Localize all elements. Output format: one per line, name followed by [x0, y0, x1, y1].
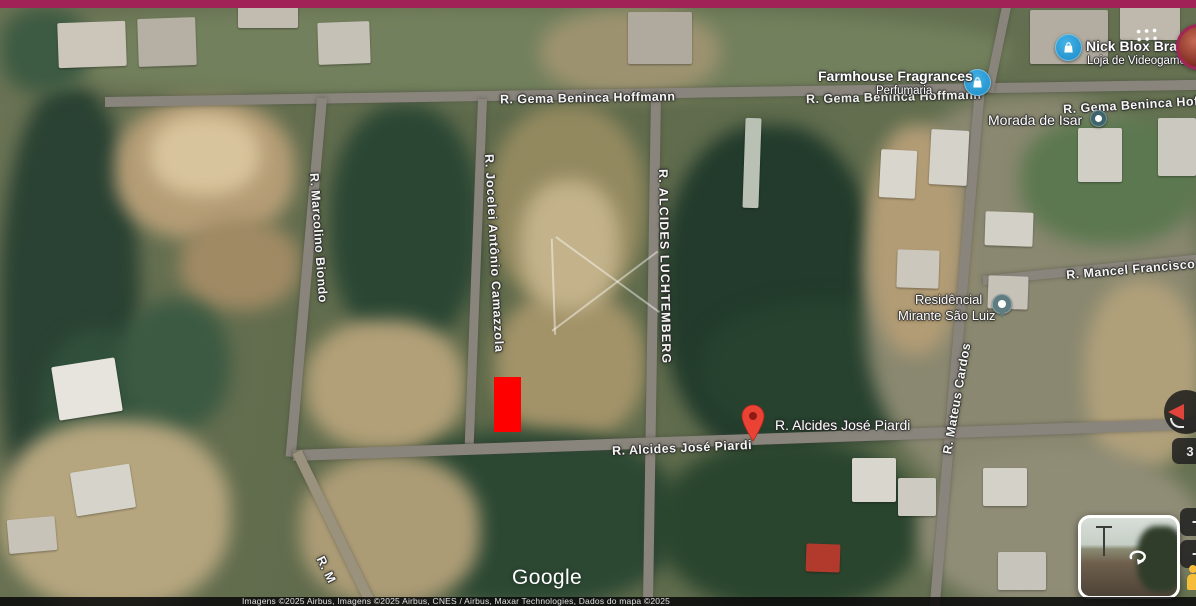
top-border-bar	[0, 0, 1196, 8]
building-roof	[898, 478, 936, 516]
highlighted-lot-rectangle	[494, 377, 521, 432]
building-roof	[628, 12, 692, 64]
building-roof	[1158, 118, 1196, 176]
building-roof	[852, 458, 896, 502]
attribution-text: Imagens ©2025 Airbus, Imagens ©2025 Airb…	[242, 596, 670, 606]
marker-label: R. Alcides José Piardi	[775, 417, 910, 433]
zoom-in-button[interactable]: +	[1180, 508, 1196, 536]
street-label-gema-center: R. Gema Beninca Hoffmann	[500, 89, 676, 106]
poi-subtitle-farmhouse: Perfumaria	[876, 85, 932, 97]
terrain-patch	[120, 300, 230, 430]
building-roof-red	[806, 543, 841, 572]
building-roof	[984, 211, 1033, 247]
building-roof	[998, 552, 1046, 590]
terrain-patch	[0, 420, 230, 606]
zoom-out-button[interactable]: −	[1180, 540, 1196, 568]
pegman-body	[1187, 574, 1196, 590]
terrain-patch	[305, 320, 465, 450]
red-map-marker[interactable]	[740, 404, 766, 442]
marker-pin-icon	[740, 404, 766, 442]
building-roof	[137, 17, 197, 67]
tower-structure	[742, 118, 761, 209]
street-view-rotate-arrow-icon	[1125, 544, 1151, 566]
building-roof	[7, 516, 58, 554]
scale-badge[interactable]: 3	[1172, 438, 1196, 464]
pegman-head	[1189, 565, 1196, 573]
street-label-gema-far-right: R. Gema Beninca Hoffmann	[1063, 92, 1196, 117]
terrain-patch	[330, 105, 480, 345]
building-roof	[51, 357, 123, 420]
building-roof	[879, 149, 917, 199]
building-roof	[929, 129, 970, 186]
terrain-patch	[180, 220, 300, 310]
building-roof	[57, 21, 127, 68]
terrain-patch	[150, 115, 260, 195]
building-roof	[70, 464, 136, 517]
poi-title-morada[interactable]: Morada de Isar	[988, 112, 1082, 128]
google-logo[interactable]: Google	[512, 566, 582, 590]
pegman-control[interactable]	[1184, 565, 1196, 591]
map-canvas[interactable]: R. Gema Beninca Hoffmann R. Gema Beninca…	[0, 0, 1196, 606]
poi-pin-icon[interactable]	[992, 294, 1012, 314]
street-view-thumbnail[interactable]	[1078, 515, 1180, 599]
street-view-pole	[1103, 526, 1105, 556]
bag-glyph	[1061, 40, 1076, 55]
poi-title-residencial-line2: Mirante São Luiz	[898, 308, 996, 323]
poi-dot-icon[interactable]	[1090, 110, 1107, 127]
compass-swing-icon	[1170, 418, 1184, 428]
street-label-luchtemberg: R. ALCIDES LUCHTEMBERG	[656, 169, 673, 364]
building-roof	[1078, 128, 1122, 182]
poi-title-farmhouse[interactable]: Farmhouse Fragrances	[818, 68, 973, 84]
shopping-bag-icon[interactable]	[1055, 34, 1082, 61]
building-roof	[983, 468, 1027, 506]
building-roof	[896, 249, 939, 288]
building-roof	[317, 21, 370, 65]
poi-title-residencial-line1[interactable]: Residêncial	[915, 292, 982, 307]
poi-subtitle-nick-blox: Loja de Videogame	[1087, 55, 1186, 67]
